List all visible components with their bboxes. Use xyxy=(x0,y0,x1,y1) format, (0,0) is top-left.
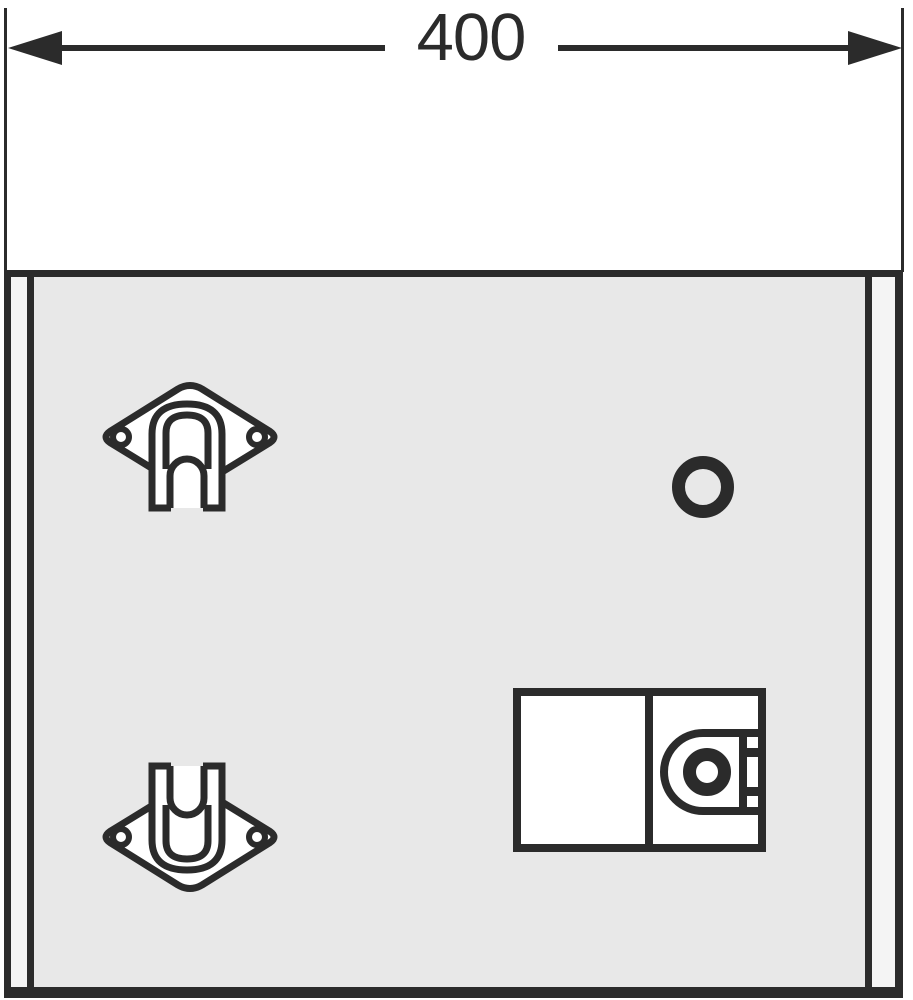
assembly-drawing: 400 xyxy=(0,0,913,1000)
dimension-arrow-right-icon xyxy=(848,31,902,65)
panel-right-outer-edge xyxy=(895,270,903,998)
panel-top-edge xyxy=(4,270,903,277)
panel-left-strip xyxy=(11,277,27,987)
extension-line-left xyxy=(4,8,7,272)
dimension-arrow-left-icon xyxy=(8,31,62,65)
lock-cylinder-icon xyxy=(659,725,759,819)
lock-box-divider xyxy=(645,696,653,844)
lock-clip-lower-tooth xyxy=(740,787,758,796)
panel-right-inner-edge xyxy=(865,277,872,987)
lock-clip-bottom-bar xyxy=(743,807,758,815)
panel-left-outer-edge xyxy=(4,270,11,998)
lock-clip-upper-tooth xyxy=(740,748,758,757)
round-hole-icon xyxy=(672,456,734,518)
mounting-bracket-up-icon xyxy=(100,758,280,890)
dimension-line-right-segment xyxy=(558,45,853,51)
panel-right-strip xyxy=(872,277,895,987)
lock-clip-top-bar xyxy=(743,729,758,737)
dimension-label: 400 xyxy=(380,2,562,74)
panel-left-inner-edge xyxy=(27,277,34,987)
dimension-line-left-segment xyxy=(55,45,385,51)
mounting-bracket-down-icon xyxy=(100,384,280,516)
panel-bottom-edge xyxy=(4,987,903,998)
